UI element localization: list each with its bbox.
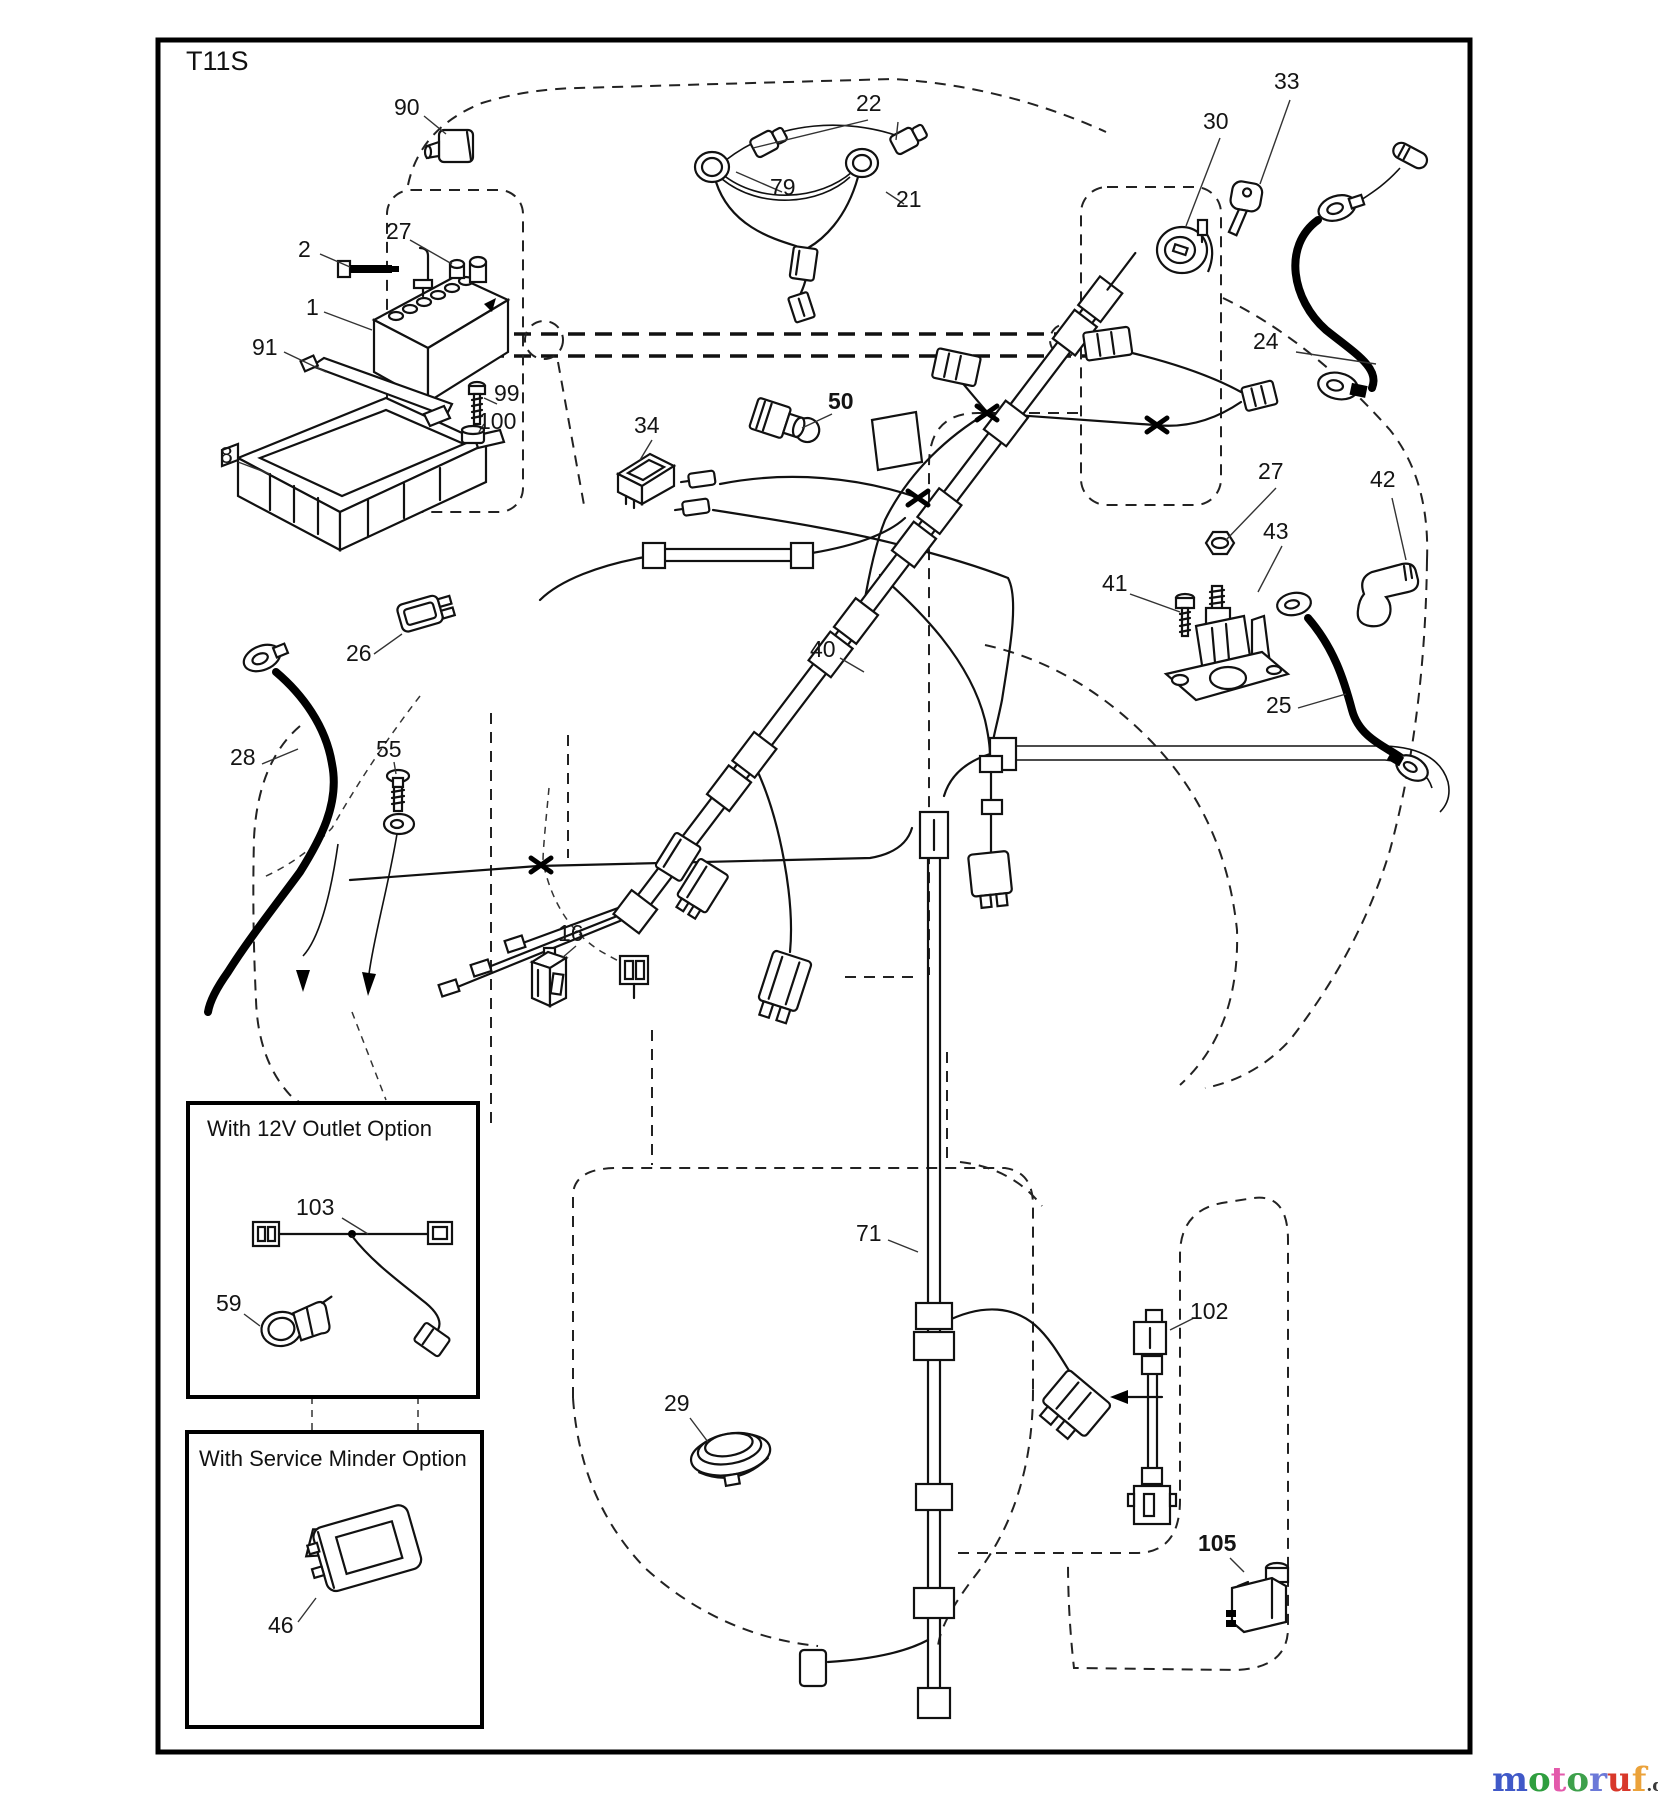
callout-21: 21 bbox=[896, 188, 922, 211]
callout-27a: 27 bbox=[386, 220, 412, 243]
callout-42: 42 bbox=[1370, 468, 1396, 491]
watermark-letter: r bbox=[1589, 1760, 1607, 1800]
callout-2: 2 bbox=[298, 238, 311, 261]
callout-90: 90 bbox=[394, 96, 420, 119]
diagram-stage: T11S With 12V Outlet Option With Service… bbox=[0, 0, 1658, 1800]
callout-46: 46 bbox=[268, 1614, 294, 1637]
callout-8: 8 bbox=[220, 444, 233, 467]
callout-30: 30 bbox=[1203, 110, 1229, 133]
callout-41: 41 bbox=[1102, 572, 1128, 595]
callout-100: 100 bbox=[478, 410, 516, 433]
callout-43: 43 bbox=[1263, 520, 1289, 543]
watermark-letter: o bbox=[1528, 1760, 1551, 1800]
upper-connector-b bbox=[1083, 327, 1132, 361]
watermark-letter: o bbox=[1566, 1760, 1589, 1800]
callout-34: 34 bbox=[634, 414, 660, 437]
callout-1: 1 bbox=[306, 296, 319, 319]
callout-33: 33 bbox=[1274, 70, 1300, 93]
callout-22: 22 bbox=[856, 92, 882, 115]
callout-16: 16 bbox=[558, 922, 584, 945]
callout-40: 40 bbox=[810, 638, 836, 661]
sheet-code-label: T11S bbox=[186, 46, 249, 77]
watermark-logo: motoruf.de bbox=[1492, 1760, 1658, 1800]
callout-50: 50 bbox=[828, 390, 854, 413]
option-box-service-minder-title: With Service Minder Option bbox=[199, 1446, 467, 1472]
callout-27b: 27 bbox=[1258, 460, 1284, 483]
callout-25: 25 bbox=[1266, 694, 1292, 717]
callout-99: 99 bbox=[494, 382, 520, 405]
callout-28: 28 bbox=[230, 746, 256, 769]
part-27-nut bbox=[450, 260, 464, 278]
callout-71: 71 bbox=[856, 1222, 882, 1245]
watermark-letters: motoruf bbox=[1492, 1760, 1646, 1800]
callout-103: 103 bbox=[296, 1196, 334, 1219]
callout-102: 102 bbox=[1190, 1300, 1228, 1323]
callout-24: 24 bbox=[1253, 330, 1279, 353]
watermark-letter: f bbox=[1632, 1760, 1647, 1800]
diagram-canvas bbox=[0, 0, 1658, 1800]
callout-79: 79 bbox=[770, 176, 796, 199]
option-box-12v-outlet-title: With 12V Outlet Option bbox=[207, 1116, 432, 1142]
watermark-letter: t bbox=[1551, 1760, 1567, 1800]
callout-26: 26 bbox=[346, 642, 372, 665]
callout-59: 59 bbox=[216, 1292, 242, 1315]
watermark-letter: u bbox=[1607, 1760, 1632, 1800]
part-50-label-plate bbox=[872, 412, 922, 470]
watermark-suffix: .de bbox=[1646, 1776, 1658, 1796]
callout-105: 105 bbox=[1198, 1532, 1236, 1555]
callout-55: 55 bbox=[376, 738, 402, 761]
watermark-letter: m bbox=[1492, 1760, 1528, 1800]
callout-29: 29 bbox=[664, 1392, 690, 1415]
callout-91: 91 bbox=[252, 336, 278, 359]
